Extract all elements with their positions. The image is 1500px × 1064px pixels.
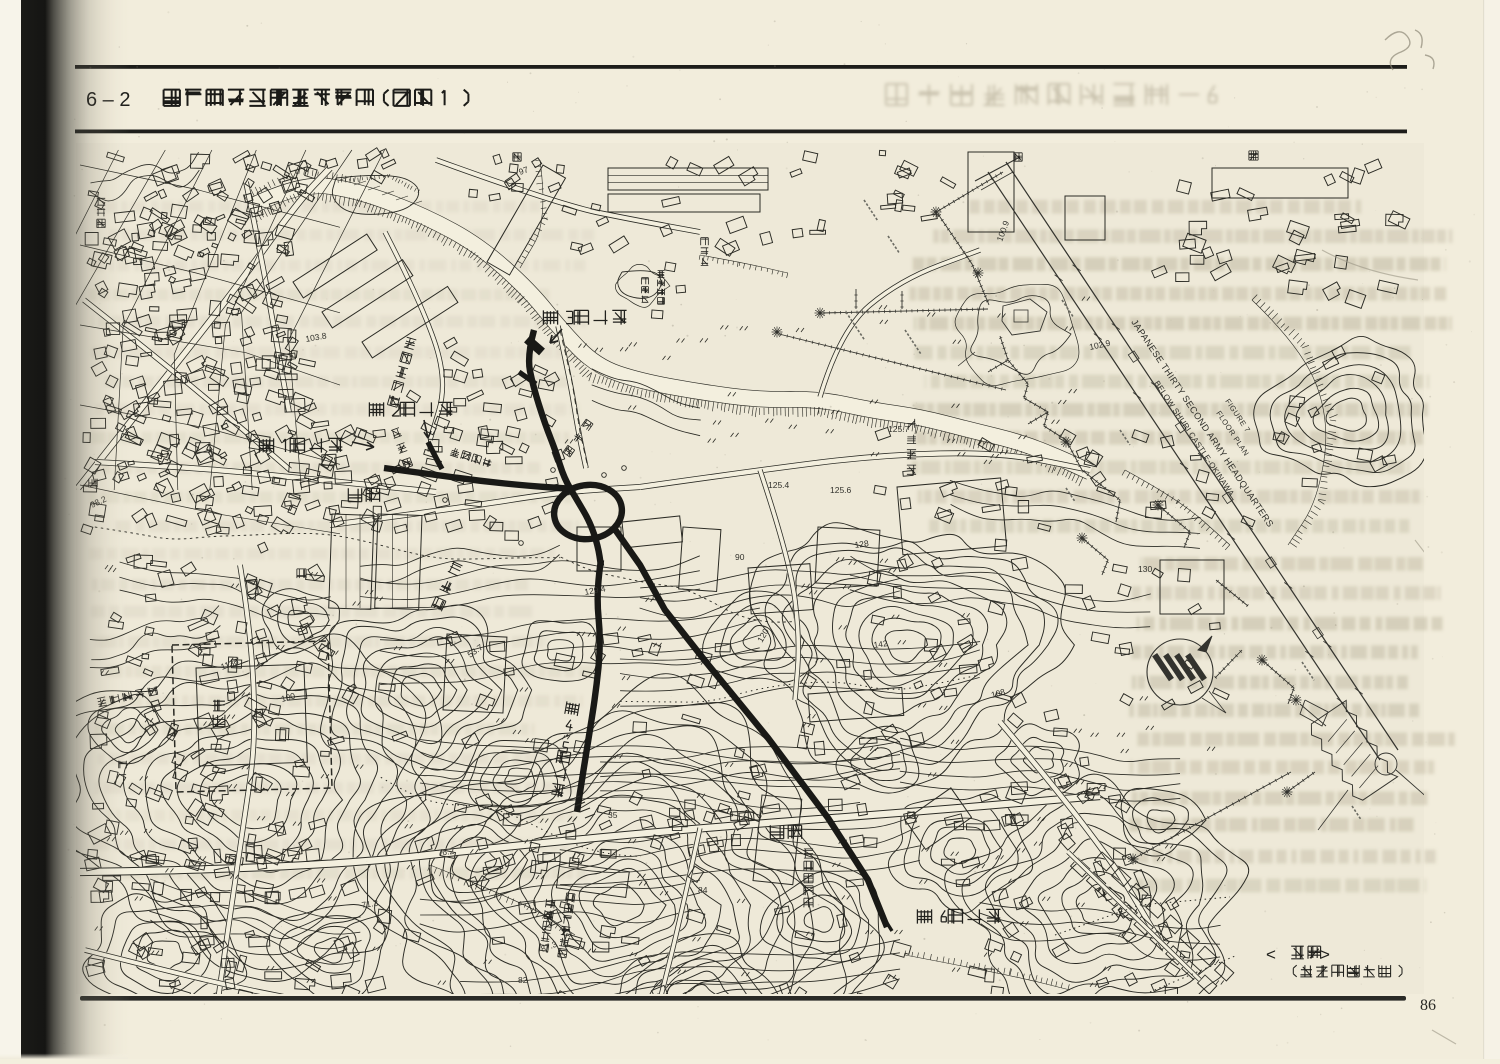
svg-text:86: 86 <box>1420 997 1436 1014</box>
svg-text:125.6: 125.6 <box>830 485 852 495</box>
svg-text:82: 82 <box>518 975 528 985</box>
svg-text:90: 90 <box>735 552 745 562</box>
svg-text:130: 130 <box>1138 564 1152 574</box>
svg-text:35: 35 <box>608 810 618 820</box>
svg-text:>: > <box>1320 945 1330 964</box>
svg-text:125.4: 125.4 <box>768 480 790 490</box>
svg-text:125.7: 125.7 <box>888 424 910 434</box>
svg-text:142: 142 <box>873 638 889 650</box>
svg-text:<: < <box>1266 945 1276 964</box>
svg-text:128: 128 <box>854 538 870 550</box>
svg-text:84: 84 <box>698 885 708 895</box>
